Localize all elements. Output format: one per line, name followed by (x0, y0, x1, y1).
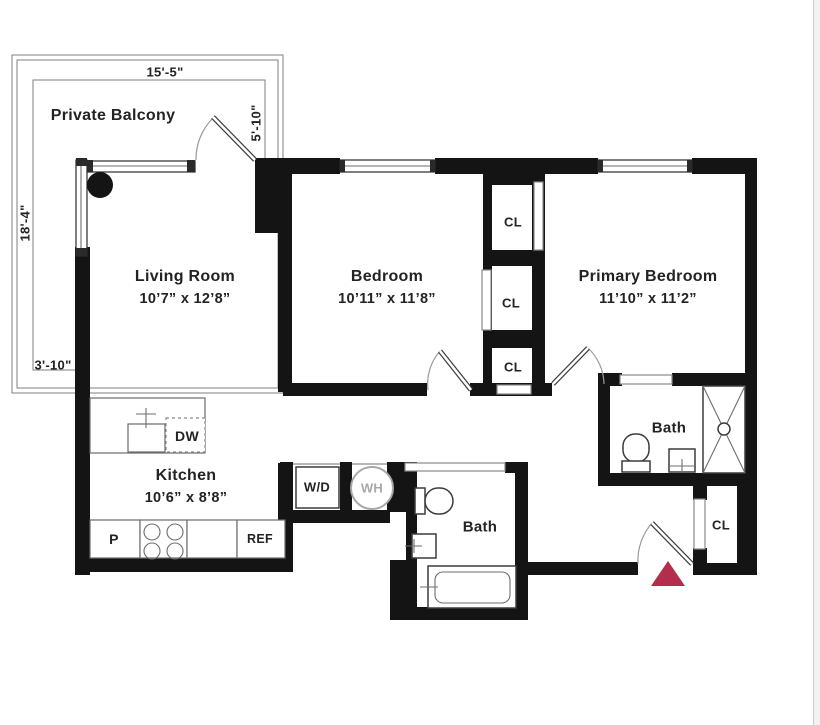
label-closet-2: CL (502, 296, 520, 311)
label-kitchen: Kitchen (156, 467, 217, 485)
entry-marker (651, 561, 685, 586)
primary-window (598, 160, 692, 172)
closet2-door (482, 270, 491, 330)
closet1-door (534, 182, 543, 250)
label-dim-left: 18'-4" (18, 204, 33, 241)
label-dim-right: 5'-10" (249, 104, 264, 141)
balcony-frame (12, 55, 283, 393)
hall-bath-door (405, 463, 505, 471)
label-living-room-dims: 10’7” x 12’8” (140, 291, 231, 307)
toilet-tank (415, 488, 425, 514)
closet3-door (497, 385, 531, 394)
entry-door (638, 523, 692, 564)
shower (703, 386, 745, 473)
toilet-bowl (623, 434, 649, 462)
screen-edge-strip (813, 0, 820, 725)
primary-bath-door (620, 375, 672, 384)
label-closet-foyer: CL (712, 518, 730, 533)
toilet-bowl (425, 488, 453, 514)
label-dim-top: 15'-5" (146, 65, 183, 80)
foyer-closet-door (694, 499, 705, 549)
label-washer-dryer: W/D (304, 480, 330, 495)
label-private-balcony: Private Balcony (51, 107, 176, 125)
label-living-room: Living Room (135, 268, 235, 286)
living-window-top (85, 160, 195, 172)
label-bedroom: Bedroom (351, 268, 423, 286)
hall-bath-fixtures (405, 488, 516, 608)
label-closet-3: CL (504, 360, 522, 375)
label-primary-bedroom-dims: 11’10” x 11’2” (599, 291, 697, 307)
primary-bedroom-door (553, 348, 604, 384)
label-bedroom-dims: 10’11” x 11’8” (338, 291, 436, 307)
toilet-tank (622, 461, 650, 472)
windows (76, 158, 692, 256)
counter-cabinet (187, 520, 237, 558)
bedroom-window (340, 160, 435, 172)
bedroom-door (428, 351, 471, 390)
column-dot (87, 172, 113, 198)
label-bath-hall: Bath (463, 519, 498, 536)
label-water-heater: WH (361, 481, 383, 496)
label-fridge: REF (247, 532, 273, 546)
balcony-door (196, 117, 255, 160)
label-pantry: P (109, 531, 119, 547)
floor-plan-page: Private Balcony 15'-5" 5'-10" 18'-4" 3'-… (0, 0, 820, 725)
label-kitchen-dims: 10’6” x 8’8” (145, 490, 228, 506)
label-dishwasher: DW (175, 428, 199, 444)
label-bath-primary: Bath (652, 420, 687, 437)
island-sink (128, 424, 165, 452)
label-primary-bedroom: Primary Bedroom (579, 268, 718, 286)
living-window-left (76, 158, 87, 256)
label-dim-bottom: 3'-10" (34, 358, 71, 373)
label-closet-1: CL (504, 215, 522, 230)
